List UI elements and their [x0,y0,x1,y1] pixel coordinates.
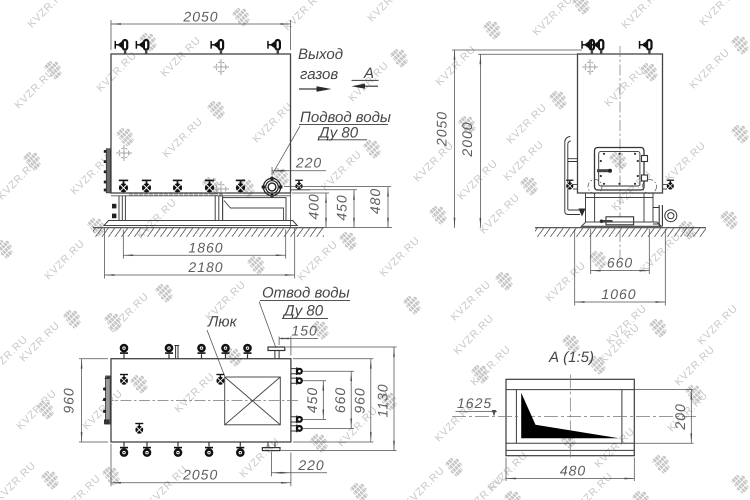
svg-text:2050: 2050 [182,9,218,25]
svg-text:960: 960 [61,387,77,413]
svg-text:Люк: Люк [207,314,238,331]
svg-text:2050: 2050 [434,111,450,147]
svg-text:KVZR.RU: KVZR.RU [672,343,717,388]
svg-text:660: 660 [332,387,348,413]
svg-text:KVZR.RU: KVZR.RU [455,157,500,202]
svg-text:960: 960 [351,387,367,413]
svg-text:KVZR.RU: KVZR.RU [477,191,522,236]
svg-text:Отвод воды: Отвод воды [262,285,350,302]
svg-text:KVZR.RU: KVZR.RU [172,370,217,415]
svg-text:1060: 1060 [601,286,636,302]
svg-text:2000: 2000 [459,121,475,157]
svg-text:220: 220 [295,155,322,171]
svg-text:KVZR.RU: KVZR.RU [365,0,410,24]
svg-text:KVZR.RU: KVZR.RU [638,230,683,275]
svg-text:KVZR.RU: KVZR.RU [602,64,647,109]
svg-text:KVZR.RU: KVZR.RU [592,425,637,470]
svg-text:KVZR.RU: KVZR.RU [281,0,326,33]
svg-text:2180: 2180 [187,259,223,275]
svg-text:KVZR.RU: KVZR.RU [106,290,151,335]
svg-text:KVZR.RU: KVZR.RU [504,101,549,146]
svg-text:KVZR.RU: KVZR.RU [25,0,70,30]
svg-text:KVZR.RU: KVZR.RU [0,459,38,500]
svg-text:KVZR.RU: KVZR.RU [501,138,546,183]
svg-text:А: А [363,65,374,82]
svg-text:KVZR.RU: KVZR.RU [158,34,203,79]
svg-text:KVZR.RU: KVZR.RU [94,49,139,94]
svg-text:KVZR.RU: KVZR.RU [160,115,205,160]
svg-text:KVZR.RU: KVZR.RU [619,0,664,31]
svg-text:KVZR.RU: KVZR.RU [250,100,295,145]
svg-text:KVZR.RU: KVZR.RU [687,46,732,91]
svg-text:1625: 1625 [457,395,492,411]
svg-text:KVZR.RU: KVZR.RU [402,464,447,500]
svg-text:KVZR.RU: KVZR.RU [468,343,513,388]
svg-text:KVZR.RU: KVZR.RU [42,237,87,282]
svg-text:450: 450 [334,194,350,220]
svg-text:480: 480 [367,188,383,214]
svg-text:KVZR.RU: KVZR.RU [377,234,422,279]
svg-text:KVZR.RU: KVZR.RU [697,0,742,28]
svg-text:KVZR.RU: KVZR.RU [695,302,740,347]
svg-text:Ду 80: Ду 80 [317,125,359,142]
svg-text:2050: 2050 [182,466,218,482]
svg-text:200: 200 [672,403,688,430]
svg-text:1130: 1130 [375,383,391,417]
svg-text:480: 480 [560,463,586,479]
svg-text:А (1:5): А (1:5) [548,349,594,366]
svg-text:KVZR.RU: KVZR.RU [80,387,125,432]
svg-text:220: 220 [297,457,324,473]
svg-text:660: 660 [607,255,633,271]
svg-text:Выход: Выход [298,46,343,63]
svg-text:KVZR.RU: KVZR.RU [663,139,708,184]
svg-text:KVZR.RU: KVZR.RU [295,238,340,283]
svg-text:KVZR.RU: KVZR.RU [58,472,103,500]
svg-text:KVZR.RU: KVZR.RU [530,0,575,38]
svg-text:KVZR.RU: KVZR.RU [543,259,588,304]
svg-text:газов: газов [300,66,338,83]
svg-text:Ду 80: Ду 80 [282,303,324,320]
svg-text:150: 150 [291,323,317,339]
svg-text:1860: 1860 [188,240,223,256]
svg-text:450: 450 [304,387,320,413]
svg-text:Подвод воды: Подвод воды [300,109,391,126]
svg-text:400: 400 [306,193,322,219]
svg-text:KVZR.RU: KVZR.RU [461,473,506,500]
